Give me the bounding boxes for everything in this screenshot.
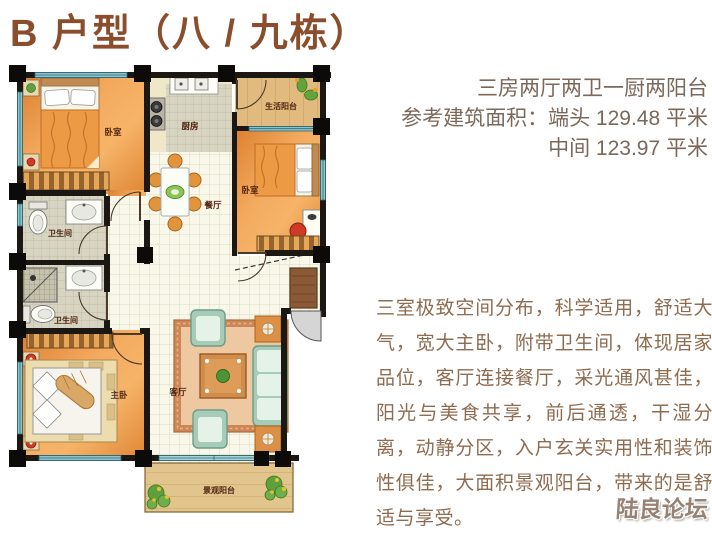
window-icon xyxy=(321,160,326,200)
pillar xyxy=(9,450,26,467)
wardrobe-icon xyxy=(257,236,319,251)
room-label-kitchen: 厨房 xyxy=(181,121,198,131)
pillar xyxy=(135,450,152,467)
spec-block: 三房两厅两卫一厨两阳台 参考建筑面积：端头 129.48 平米 中间 123.9… xyxy=(368,74,708,164)
pillar xyxy=(9,253,26,270)
side-table-icon xyxy=(255,316,281,342)
spec-line-rooms: 三房两厅两卫一厨两阳台 xyxy=(368,74,708,104)
plant-icon xyxy=(27,84,36,93)
room-label-view-balcony: 景观阳台 xyxy=(203,485,235,495)
wardrobe-icon xyxy=(27,332,113,348)
room-label-dining: 餐厅 xyxy=(203,200,222,210)
pillar xyxy=(275,451,291,467)
page-title: B 户型（八 / 九栋） xyxy=(10,2,370,57)
room-label-master-bedroom: 主卧 xyxy=(110,390,128,400)
bed-icon xyxy=(255,144,319,196)
pillar xyxy=(134,65,151,82)
window-icon xyxy=(18,362,23,434)
bed-icon xyxy=(25,360,117,442)
stove-icon xyxy=(148,98,165,130)
window-icon xyxy=(18,92,23,166)
sink-icon xyxy=(66,200,102,224)
kitchen-tile xyxy=(166,84,232,154)
room-label-bedroom-top-left: 卧室 xyxy=(104,127,122,137)
bed-icon xyxy=(41,78,99,168)
spec-line-area-end: 参考建筑面积：端头 129.48 平米 xyxy=(368,104,708,134)
window-icon xyxy=(18,204,23,226)
window-icon xyxy=(35,73,127,78)
shower-icon xyxy=(23,268,57,302)
toilet-icon xyxy=(23,306,55,324)
side-table-icon xyxy=(255,426,281,452)
room-label-bedroom-right: 卧室 xyxy=(241,185,259,195)
pillar xyxy=(254,451,269,466)
room-label-living-room: 客厅 xyxy=(168,387,187,397)
window-icon xyxy=(249,127,315,132)
pillar xyxy=(313,246,330,263)
room-label-bathroom-bottom: 卫生间 xyxy=(54,315,78,325)
coffee-table-icon xyxy=(200,354,246,398)
pillar xyxy=(218,65,235,82)
pillar xyxy=(9,321,26,338)
armchair-icon xyxy=(193,410,227,448)
window-icon xyxy=(39,456,121,461)
floorplan-svg: 卧室 厨房 生活阳台 卧室 餐厅 卫生间 卫生间 主卧 客厅 景观阳台 xyxy=(9,64,339,516)
room-label-life-balcony: 生活阳台 xyxy=(265,101,297,111)
room-label-bathroom-top: 卫生间 xyxy=(48,228,72,238)
plant-icon xyxy=(217,370,230,383)
sink-icon xyxy=(66,266,102,290)
armchair-icon xyxy=(191,310,225,346)
watermark-text: 陆良论坛 xyxy=(615,490,709,524)
entry-door-icon xyxy=(291,311,321,341)
wardrobe-icon xyxy=(23,172,109,190)
doormat-icon xyxy=(290,268,317,308)
pillar xyxy=(137,247,153,263)
floorplan-image: 卧室 厨房 生活阳台 卧室 餐厅 卫生间 卫生间 主卧 客厅 景观阳台 xyxy=(9,64,339,516)
pillar xyxy=(9,65,26,82)
pillar xyxy=(9,183,26,200)
lamp-icon xyxy=(27,158,35,166)
toilet-icon xyxy=(29,202,47,234)
floorplan-ad-page: { "header": { "title": "B 户型（八 / 九栋）" },… xyxy=(0,0,712,526)
spec-line-area-mid: 中间 123.97 平米 xyxy=(368,134,708,164)
living-room-furniture xyxy=(174,310,288,452)
pillar xyxy=(313,65,330,82)
pillar xyxy=(313,118,330,135)
sliding-door-icon xyxy=(159,456,269,461)
